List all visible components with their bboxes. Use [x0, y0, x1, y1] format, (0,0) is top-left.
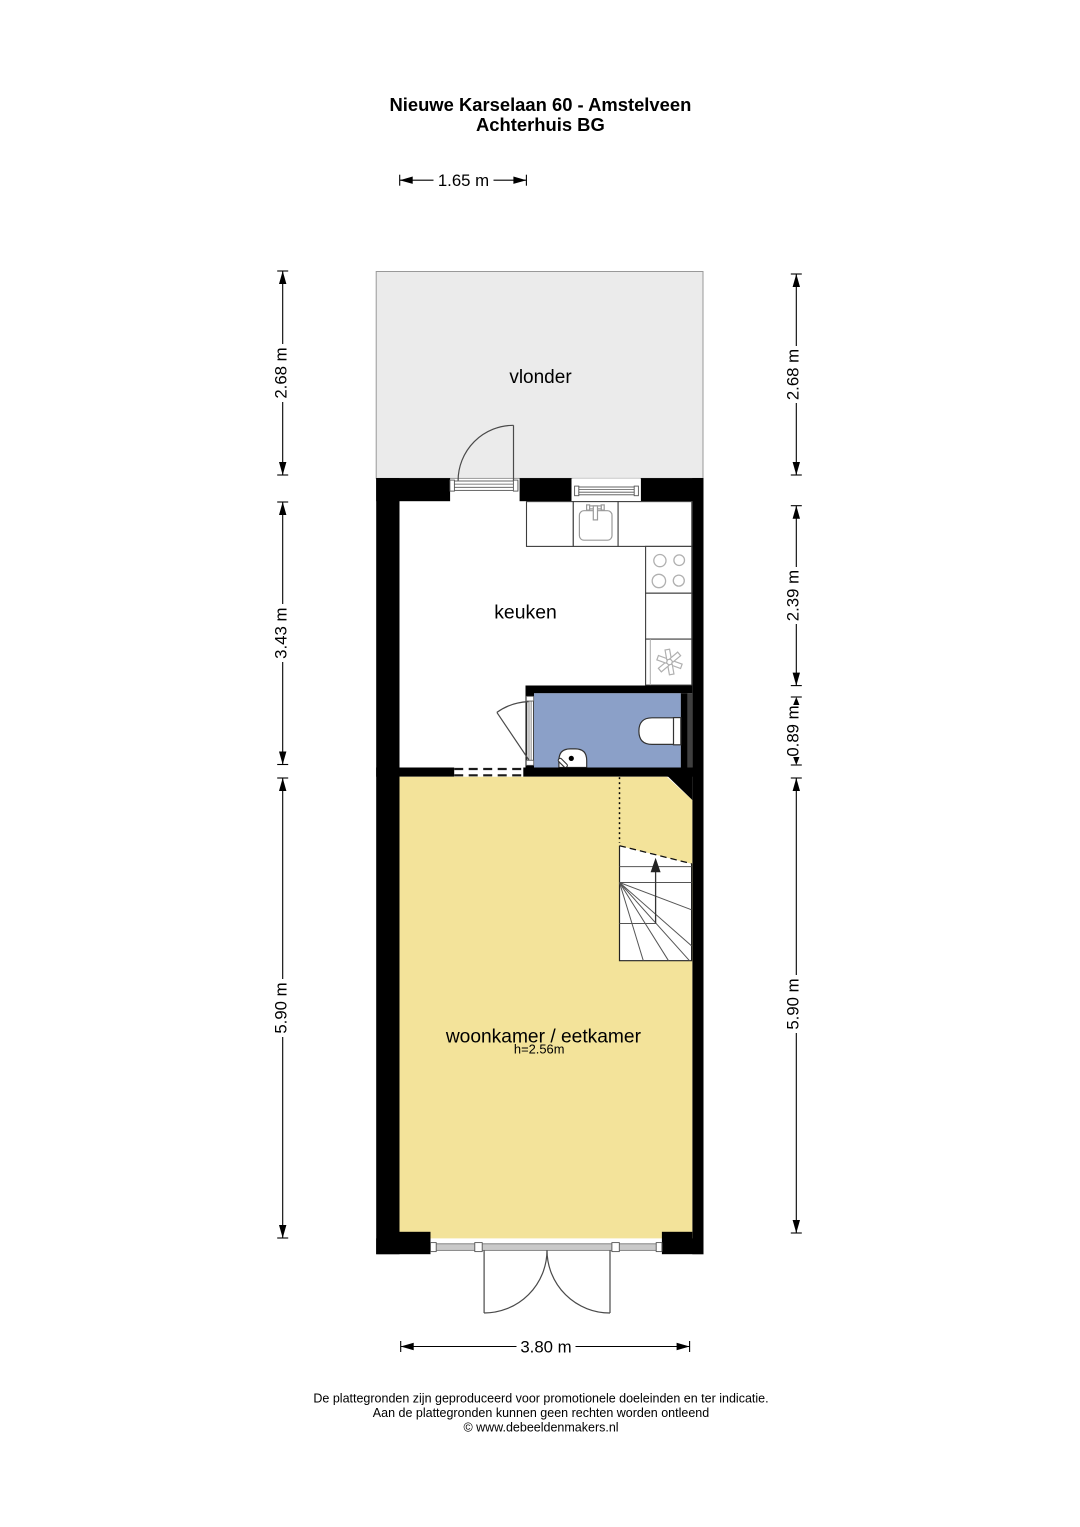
- svg-text:h=2.56m: h=2.56m: [514, 1041, 565, 1056]
- svg-text:vlonder: vlonder: [509, 367, 572, 388]
- svg-text:Aan de plattegronden kunnen ge: Aan de plattegronden kunnen geen rechten…: [373, 1406, 709, 1420]
- svg-text:2.68 m: 2.68 m: [784, 349, 803, 400]
- svg-text:2.39 m: 2.39 m: [784, 570, 803, 621]
- svg-text:2.68 m: 2.68 m: [271, 347, 290, 398]
- svg-text:keuken: keuken: [494, 602, 557, 624]
- svg-text:© www.debeeldenmakers.nl: © www.debeeldenmakers.nl: [463, 1421, 618, 1435]
- svg-text:3.80 m: 3.80 m: [520, 1337, 571, 1356]
- svg-text:0.89 m: 0.89 m: [784, 705, 803, 756]
- svg-text:1.65 m: 1.65 m: [438, 171, 489, 190]
- svg-text:5.90 m: 5.90 m: [784, 978, 803, 1029]
- svg-text:Nieuwe Karselaan 60 - Amstelve: Nieuwe Karselaan 60 - Amstelveen: [389, 94, 691, 115]
- svg-text:Achterhuis BG: Achterhuis BG: [476, 114, 605, 135]
- svg-text:5.90 m: 5.90 m: [271, 982, 290, 1033]
- svg-text:3.43 m: 3.43 m: [271, 608, 290, 659]
- svg-text:De plattegronden zijn geproduc: De plattegronden zijn geproduceerd voor …: [313, 1392, 768, 1406]
